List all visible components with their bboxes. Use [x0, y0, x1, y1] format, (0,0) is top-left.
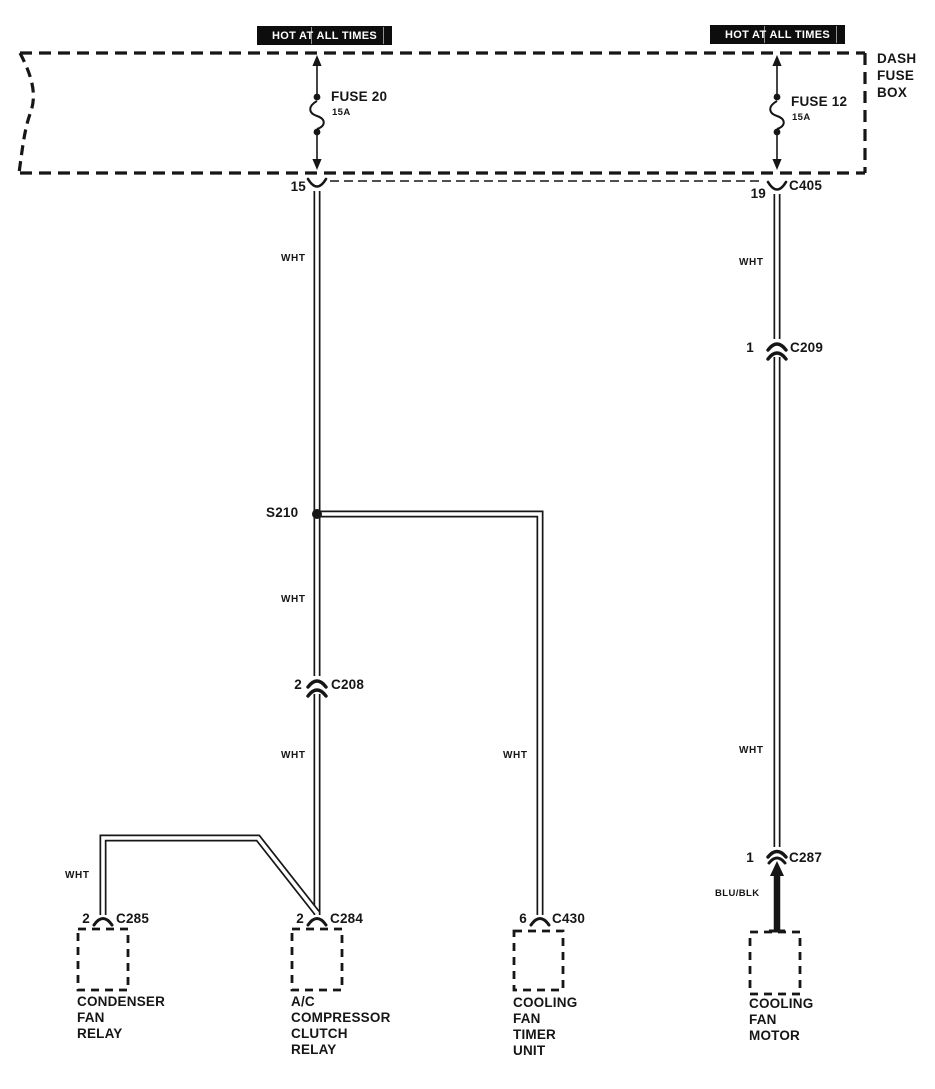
- component-label-ac-compressor-clutch-relay: A/C COMPRESSOR CLUTCH RELAY: [291, 994, 391, 1058]
- connector-id-c405: C405: [789, 178, 822, 193]
- dash-fuse-box-label: DASH FUSE BOX: [877, 50, 916, 101]
- splice-s210-dot: [312, 509, 322, 519]
- component-label-condenser-fan-relay: CONDENSER FAN RELAY: [77, 994, 165, 1042]
- splice-id-s210: S210: [266, 505, 298, 520]
- component-box-ac-compressor-clutch-relay: [292, 929, 342, 990]
- wire-color-label: WHT: [281, 253, 306, 264]
- connector-id-c287: C287: [789, 850, 822, 865]
- banner-divider: [764, 26, 765, 43]
- pin-c285: 2: [70, 911, 90, 926]
- wire-color-label: WHT: [739, 257, 764, 268]
- fuse-20-rating: 15A: [332, 107, 351, 118]
- component-box-condenser-fan-relay: [78, 929, 128, 990]
- pin-19: 19: [746, 186, 766, 201]
- connector-symbol-c284-pin: [308, 919, 326, 926]
- banner-divider: [383, 27, 384, 44]
- connector-symbol-c285-pin: [94, 919, 112, 926]
- fuse-12-symbol: [770, 55, 784, 170]
- component-box-cooling-fan-motor: [750, 932, 800, 994]
- pin-c284: 2: [284, 911, 304, 926]
- wiring-diagram-canvas: HOT AT ALL TIMES HOT AT ALL TIMES DASH F…: [0, 0, 935, 1089]
- connector-id-c430: C430: [552, 911, 585, 926]
- connector-symbol-pin15: [308, 179, 326, 187]
- component-label-cooling-fan-timer-unit: COOLING FAN TIMER UNIT: [513, 995, 577, 1059]
- pin-c209: 1: [734, 340, 754, 355]
- connector-symbol-pin19: [768, 182, 786, 190]
- wire-timer-branch: [317, 514, 540, 915]
- fuse-20-label: FUSE 20: [331, 89, 387, 104]
- wire-color-label: WHT: [281, 594, 306, 605]
- banner-divider: [836, 26, 837, 43]
- pin-15: 15: [286, 179, 306, 194]
- connector-symbol-c209: [767, 339, 787, 359]
- wire-color-label: WHT: [281, 750, 306, 761]
- connector-id-c285: C285: [116, 911, 149, 926]
- wire-color-label: WHT: [503, 750, 528, 761]
- wire-condenser-branch: [103, 838, 317, 915]
- fuse-12-rating: 15A: [792, 112, 811, 123]
- hot-at-all-times-banner-right: HOT AT ALL TIMES: [710, 25, 845, 44]
- pin-c287: 1: [734, 850, 754, 865]
- banner-left-text: HOT AT ALL TIMES: [272, 30, 377, 42]
- banner-right-text: HOT AT ALL TIMES: [725, 29, 830, 41]
- connector-id-c209: C209: [790, 340, 823, 355]
- component-box-cooling-fan-timer-unit: [514, 931, 563, 990]
- connector-id-c284: C284: [330, 911, 363, 926]
- pin-c208: 2: [282, 677, 302, 692]
- wire-color-label: WHT: [739, 745, 764, 756]
- wire-motor-feed: [769, 861, 785, 931]
- component-label-cooling-fan-motor: COOLING FAN MOTOR: [749, 996, 813, 1044]
- connector-symbol-c287: [766, 847, 788, 863]
- dash-fuse-box-outline: [19, 53, 865, 173]
- fuse-12-label: FUSE 12: [791, 94, 847, 109]
- pin-c430: 6: [507, 911, 527, 926]
- wire-color-label: WHT: [65, 870, 90, 881]
- wire-color-label-blu-blk: BLU/BLK: [715, 888, 760, 899]
- connector-id-c208: C208: [331, 677, 364, 692]
- connector-symbol-c430-pin: [531, 919, 549, 926]
- hot-at-all-times-banner-left: HOT AT ALL TIMES: [257, 26, 392, 45]
- connector-symbol-c208: [307, 676, 327, 696]
- fuse-20-symbol: [310, 55, 324, 170]
- banner-divider: [311, 27, 312, 44]
